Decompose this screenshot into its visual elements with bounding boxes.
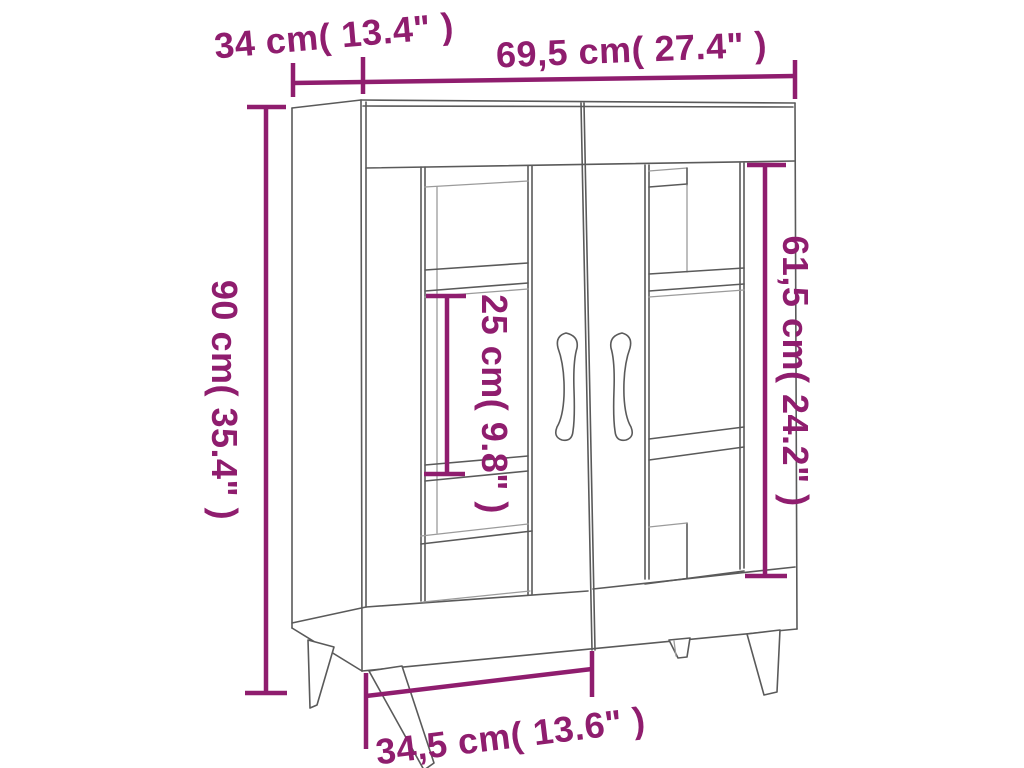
bottom-box-top: [649, 523, 687, 527]
dimension-diagram: 34 cm( 13.4" ) 69,5 cm( 27.4" ) 90 cm( 3…: [0, 0, 1024, 768]
shelf-spacing-label: 25 cm( 9.8" ): [474, 294, 515, 514]
door-height-label: 61,5 cm( 24.2" ): [775, 235, 816, 506]
top-rail-bottom-line: [366, 161, 795, 168]
shelf-a-front: [649, 284, 744, 291]
shelf-a-top: [425, 263, 528, 270]
leg-side-left: [308, 640, 334, 708]
bottom-edge: [362, 629, 797, 671]
interior-top-edge: [425, 181, 528, 187]
interior-top-step-a: [649, 168, 687, 171]
side-top-edge: [292, 100, 361, 108]
cabinet-drawing: [292, 100, 797, 768]
left-door-bottom-edge: [366, 591, 588, 607]
dimension-labels: 34 cm( 13.4" ) 69,5 cm( 27.4" ) 90 cm( 3…: [204, 5, 816, 768]
door-handles: [556, 333, 632, 440]
door-gap-right-line: [584, 103, 595, 650]
top-dimension-line: [293, 76, 795, 83]
depth-label: 34 cm( 13.4" ): [212, 5, 455, 67]
height-label: 90 cm( 35.4" ): [204, 280, 245, 520]
right-door-glass: [645, 163, 744, 584]
glass-bottom-frame: [645, 571, 744, 584]
door-gap-left-line: [581, 103, 592, 650]
side-rail-edge: [292, 607, 366, 623]
width-label: 69,5 cm( 27.4" ): [495, 24, 768, 76]
height-dimension: [245, 107, 287, 693]
door-gap: [581, 103, 595, 650]
diagram-canvas: 34 cm( 13.4" ) 69,5 cm( 27.4" ) 90 cm( 3…: [0, 0, 1024, 768]
right-door-handle: [611, 333, 632, 440]
leg-rear-right: [669, 638, 690, 658]
shelf-spacing-dimension: [424, 296, 466, 474]
front-left-edge: [361, 100, 362, 671]
shelf-a-underside: [649, 290, 744, 297]
shelf-b-front: [649, 447, 744, 460]
top-back-edge: [361, 100, 795, 103]
shelf-b-top: [649, 427, 744, 439]
left-door-handle: [556, 333, 577, 440]
interior-top-step-c: [649, 184, 687, 187]
shelf-a-top: [649, 268, 744, 274]
cabinet-outline: [292, 100, 797, 671]
leg-front-right: [747, 630, 780, 695]
top-front-edge: [363, 106, 793, 107]
